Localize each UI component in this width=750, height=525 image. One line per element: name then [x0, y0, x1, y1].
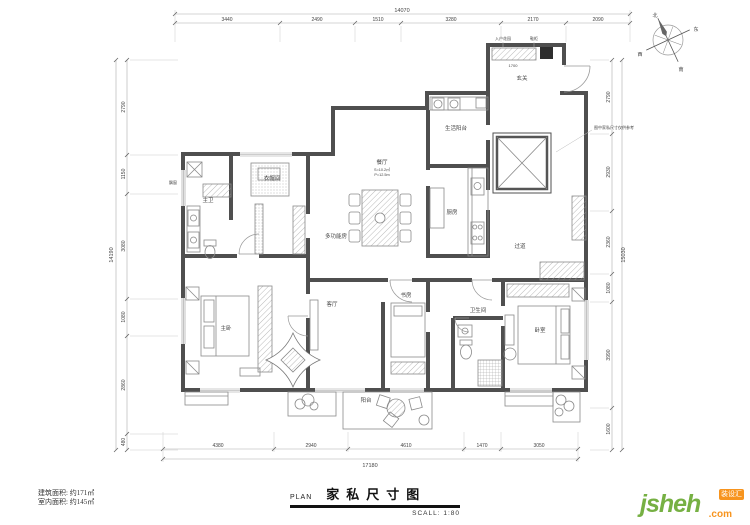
drawing-title: 家私尺寸图	[326, 484, 426, 503]
room-label-dining: 餐厅	[376, 158, 388, 166]
room-label-service-balcony: 生活阳台	[445, 124, 468, 132]
dim-right-5: 3990	[606, 349, 612, 360]
room-label-hall: 过道	[514, 242, 526, 250]
annotation-cabinet-dim: 1700	[509, 63, 519, 68]
logo-badge: 装设汇	[719, 489, 744, 500]
dim-left-total: 14190	[109, 247, 115, 262]
dim-left-1: 2790	[121, 101, 127, 112]
dim-right-total: 15030	[621, 247, 627, 262]
dim-bottom-total: 17180	[362, 463, 377, 469]
compass-west-label: 西	[637, 52, 642, 58]
dim-bottom-1: 4380	[212, 443, 223, 449]
room-label-multiroom: 多功能房	[325, 232, 348, 240]
annotation-bay-window: 飘窗	[169, 179, 177, 185]
elevator-shaft	[493, 133, 551, 193]
scale-text: SCALL: 1:80	[290, 510, 460, 517]
dim-top-2: 2490	[311, 17, 322, 23]
dim-top-4: 3280	[445, 17, 456, 23]
logo-suffix: .com	[709, 509, 732, 520]
dim-left-5: 2860	[121, 379, 127, 390]
room-label-living: 客厅	[326, 300, 338, 308]
room-label-master-bath: 主卫	[202, 196, 214, 204]
interior-area-text: 室内面积: 约145㎡	[38, 498, 94, 507]
room-label-balcony: 阳台	[360, 396, 372, 404]
room-dining-perimeter: P=12.5m	[374, 173, 389, 177]
dim-left-2: 1150	[121, 168, 127, 179]
room-label-bathroom: 卫生间	[470, 306, 487, 314]
compass-south-label: 南	[678, 66, 683, 73]
room-label-study: 书房	[400, 291, 412, 299]
dim-top-3: 1510	[372, 17, 383, 23]
annotation-note: 图中家私尺寸仅供参考	[594, 124, 634, 130]
dim-top-5: 2170	[527, 17, 538, 23]
room-dining-area: S=10.2㎡	[374, 167, 390, 172]
floor-plan-drawing: 14070 3440 2490 1510 3280 2170 2090 4380…	[0, 0, 750, 525]
room-label-entry: 玄关	[516, 74, 528, 82]
dim-top-total: 14070	[394, 8, 409, 14]
dim-top-1: 3440	[221, 17, 232, 23]
building-area-text: 建筑面积: 约171㎡	[38, 489, 94, 498]
compass-east-label: 东	[693, 26, 698, 33]
annotation-entry-garden: 入户花园	[495, 35, 511, 41]
title-block: PLAN 家私尺寸图 SCALL: 1:80	[290, 484, 460, 517]
dim-bottom-2: 2940	[305, 443, 316, 449]
plan-label: PLAN	[290, 494, 312, 501]
room-label-kitchen: 厨房	[446, 208, 458, 216]
dim-right-1: 2790	[606, 91, 612, 102]
area-summary: 建筑面积: 约171㎡ 室内面积: 约145㎡	[38, 489, 94, 507]
compass-north-label: 北	[652, 12, 657, 19]
dim-right-2: 2930	[606, 166, 612, 177]
dim-bottom-5: 3050	[533, 443, 544, 449]
room-label-master-bedroom: 主卧	[220, 324, 232, 332]
dim-left-6: 480	[121, 438, 127, 447]
jsheh-logo: jsheh .com 装设汇	[640, 489, 744, 521]
dim-left-3: 3080	[121, 240, 127, 251]
dim-bottom-3: 4610	[400, 443, 411, 449]
floor-plan-page: 14070 3440 2490 1510 3280 2170 2090 4380…	[0, 0, 750, 525]
room-label-closet: 衣帽间	[264, 174, 281, 182]
dim-right-6: 1600	[606, 423, 612, 434]
logo-text: jsheh	[640, 490, 700, 519]
dim-left-4: 1080	[121, 311, 127, 322]
dim-right-3: 2360	[606, 236, 612, 247]
dim-top-6: 2090	[592, 17, 603, 23]
dim-bottom-4: 1470	[476, 443, 487, 449]
room-label-bedroom: 卧室	[534, 326, 546, 334]
dim-right-4: 1080	[606, 282, 612, 293]
title-underline	[290, 505, 460, 508]
furniture	[185, 48, 590, 429]
compass-icon: 北 南 东 西	[636, 8, 700, 73]
annotation-shoe-cabinet: 鞋柜	[530, 35, 538, 41]
